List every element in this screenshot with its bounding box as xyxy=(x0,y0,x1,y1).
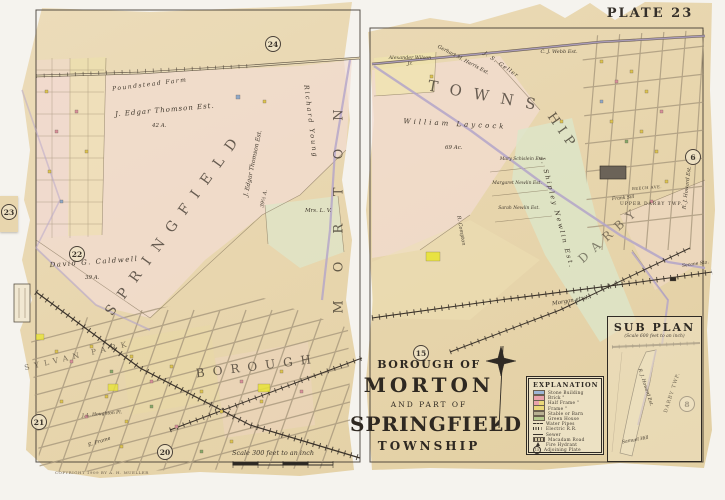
sub-plan-subtitle: (Scale 600 feet to an inch) xyxy=(608,334,701,339)
map-title-block: BOROUGH OF MORTON AND PART OF SPRINGFIEL… xyxy=(350,358,508,453)
title-connector: AND PART OF xyxy=(350,400,508,409)
electric-rr-symbol xyxy=(533,427,543,430)
acreage-laycock: 69 Ac. xyxy=(445,145,463,151)
owner-wilson: Alexander Wilson Jr. xyxy=(386,56,434,67)
copyright-line: COPYRIGHT 1909 BY A. H. MUELLER xyxy=(55,471,149,476)
title-springfield: SPRINGFIELD xyxy=(350,412,508,436)
owner-margaret-newlin: Margaret Newlin Est. xyxy=(492,181,542,186)
adjoining-plate-21: 21 xyxy=(31,414,47,430)
adjoining-plate-symbol: 15 xyxy=(533,446,541,454)
title-morton: MORTON xyxy=(350,373,508,397)
legend-label: Adjoining Plate xyxy=(544,447,581,452)
adjoining-plate-23: 23 xyxy=(1,204,17,220)
legend-row: 15Adjoining Plate xyxy=(533,447,598,452)
sewer-symbol xyxy=(533,434,543,435)
acreage-thomson-upper: 42 A. xyxy=(152,123,166,129)
legend-title: EXPLANATION xyxy=(533,381,598,389)
adjoining-plate-24: 24 xyxy=(265,36,281,52)
acreage-caldwell: 39 A. xyxy=(85,275,99,281)
greenhouse-swatch xyxy=(533,416,545,422)
adjoining-plate-22: 22 xyxy=(69,246,85,262)
adjoining-plate-20: 20 xyxy=(157,444,173,460)
scale-label: Scale 300 feet to an inch xyxy=(232,450,314,457)
owner-webb: C. J. Webb Est. xyxy=(536,50,582,56)
atlas-scan: PLATE 23 SPRINGFIELD MORTON BOROUGH TOWN… xyxy=(0,0,725,500)
adjoining-plate-6: 6 xyxy=(685,149,701,165)
road-label-box xyxy=(14,284,30,322)
explanation-legend: EXPLANATION Stone Building Brick " Half … xyxy=(526,376,604,455)
water-pipes-symbol xyxy=(533,423,543,424)
upper-darby-boundary-label: UPPER DARBY TWP. xyxy=(620,202,683,207)
borough-name-morton-vertical: MORTON xyxy=(333,57,348,337)
macadam-symbol xyxy=(533,437,545,442)
owner-mrs-lv: Mrs. L. V. xyxy=(305,208,332,214)
title-prefix: BOROUGH OF xyxy=(350,358,508,371)
title-suffix: TOWNSHIP xyxy=(350,439,508,453)
owner-sarah-newlin: Sarah Newlin Est. xyxy=(495,206,543,211)
sub-plan-title: SUB PLAN xyxy=(608,321,701,334)
plate-number: PLATE 23 xyxy=(600,6,700,21)
